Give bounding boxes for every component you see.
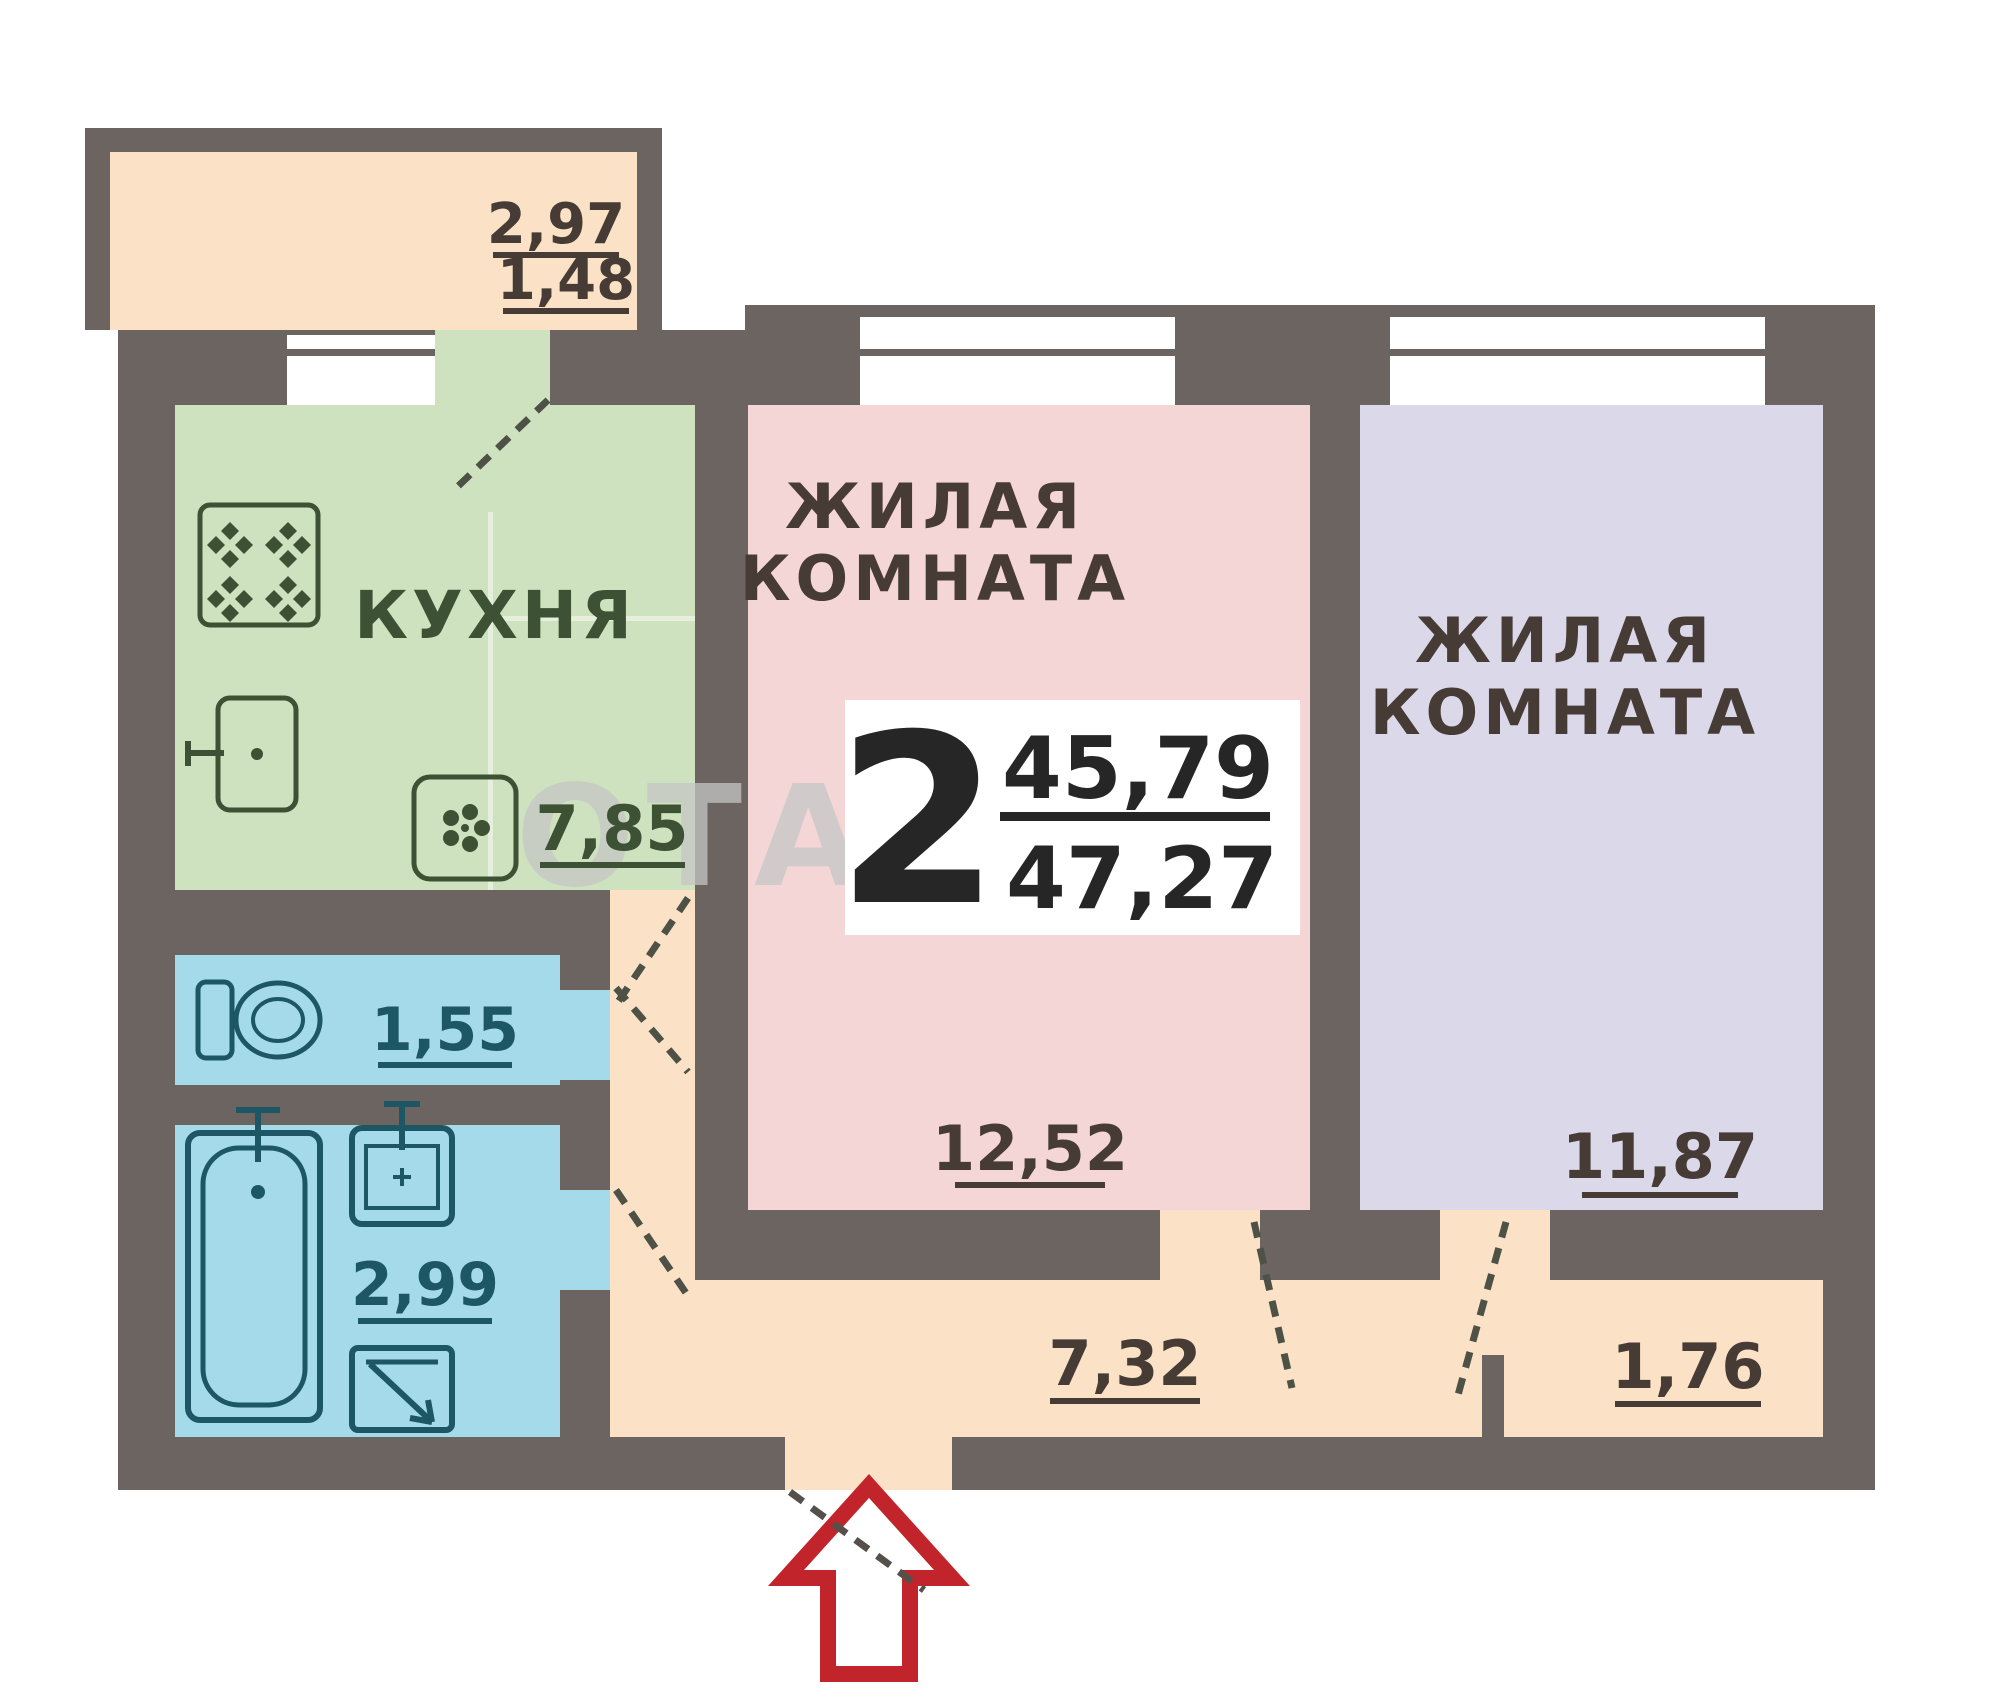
toilet-area-label: 1,55	[371, 995, 519, 1065]
toilet-door-opening	[560, 990, 610, 1080]
living-room-1-bottom-wall-a	[748, 1210, 1160, 1280]
balcony-wall-right	[637, 128, 662, 330]
balcony-wall-top	[85, 128, 662, 152]
summary-total-area: 47,27	[1006, 829, 1278, 929]
summary-box: 2 45,79 47,27	[836, 685, 1300, 958]
bathroom-area-underline	[358, 1318, 492, 1324]
balcony-area-underline	[503, 308, 629, 314]
summary-fraction-line	[1000, 812, 1270, 821]
living-room-2-label-line2: КОМНАТА	[1370, 676, 1760, 749]
living-room-2-bottom-wall-b	[1550, 1210, 1823, 1280]
living-room-1-window	[860, 317, 1175, 405]
hallway-area-label: 7,32	[1049, 1327, 1202, 1400]
bathroom-area-label: 2,99	[351, 1250, 499, 1320]
living-room-1-area-underline	[955, 1182, 1105, 1188]
kitchen-window	[287, 330, 435, 405]
hallway-strip-floor	[610, 890, 695, 1437]
living-room-2-window	[1390, 317, 1765, 405]
floor-plan: ОТА 2,97 1,48 КУХНЯ 7,85 ЖИЛАЯ КОМНАТА 1…	[0, 0, 2000, 1697]
living-rooms-divider-wall	[1310, 405, 1360, 1210]
living-room-1-label-line2: КОМНАТА	[740, 542, 1130, 615]
summary-living-area: 45,79	[1002, 719, 1274, 819]
storage-area-label: 1,76	[1612, 1330, 1765, 1403]
kitchen-label: КУХНЯ	[354, 577, 636, 654]
summary-rooms-count: 2	[836, 685, 1000, 958]
floor-plan-image: ОТА 2,97 1,48 КУХНЯ 7,85 ЖИЛАЯ КОМНАТА 1…	[0, 0, 2000, 1697]
living-room-2-door-opening	[1440, 1210, 1550, 1280]
top-wall-pier-1	[745, 317, 860, 405]
living-room-1-door-opening	[1160, 1210, 1260, 1280]
storage-area-underline	[1615, 1401, 1761, 1407]
right-wall	[1823, 305, 1875, 1490]
top-wall-pier-2	[1175, 317, 1390, 405]
living-room-2-label-line1: ЖИЛАЯ	[1415, 604, 1715, 677]
bottom-wall-right	[952, 1437, 1875, 1490]
wet-wall-3	[560, 1290, 610, 1437]
balcony-area-label: 1,48	[497, 248, 635, 313]
living-room-2-floor	[1360, 405, 1823, 1210]
living-room-2-area-underline	[1582, 1192, 1738, 1198]
living-room-1-area-label: 12,52	[932, 1112, 1128, 1185]
wet-wall-2	[560, 1080, 610, 1190]
kitchen-bottom-wall	[175, 890, 560, 955]
kitchen-area-label: 7,85	[536, 792, 689, 865]
balcony-wall-left	[85, 128, 110, 330]
kitchen-area-underline	[540, 862, 685, 868]
bathroom-door-opening	[560, 1190, 610, 1290]
top-outer-line	[745, 305, 1875, 317]
balcony-door-opening	[435, 330, 550, 408]
living-room-2-area-label: 11,87	[1562, 1120, 1758, 1193]
left-wall	[118, 330, 175, 1490]
toilet-bathroom-divider-wall	[175, 1085, 560, 1125]
hallway-area-underline	[1050, 1398, 1200, 1404]
living-room-1-label-line1: ЖИЛАЯ	[785, 470, 1085, 543]
living-room-1-bottom-wall-b	[1260, 1210, 1310, 1280]
storage-stub-wall	[1482, 1355, 1504, 1437]
bottom-wall-left	[118, 1437, 785, 1490]
living-room-2-bottom-wall-a	[1310, 1210, 1440, 1280]
toilet-area-underline	[378, 1062, 512, 1068]
